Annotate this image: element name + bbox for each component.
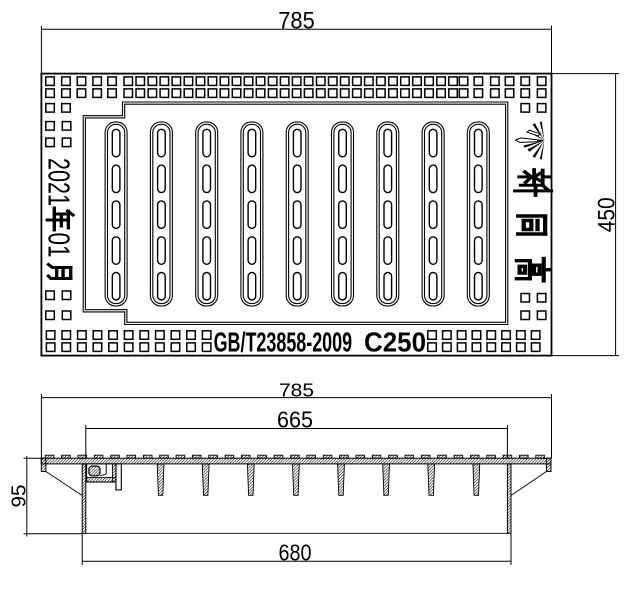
svg-text:01: 01 — [42, 233, 77, 258]
svg-text:2021: 2021 — [42, 158, 77, 206]
svg-text:C250: C250 — [364, 327, 426, 358]
svg-text:665: 665 — [277, 407, 313, 433]
svg-text:95: 95 — [9, 485, 31, 508]
svg-text:785: 785 — [278, 8, 315, 35]
svg-text:GB/T23858-2009: GB/T23858-2009 — [214, 327, 353, 358]
svg-text:680: 680 — [279, 539, 312, 565]
svg-text:785: 785 — [279, 380, 314, 401]
svg-text:450: 450 — [593, 197, 620, 232]
